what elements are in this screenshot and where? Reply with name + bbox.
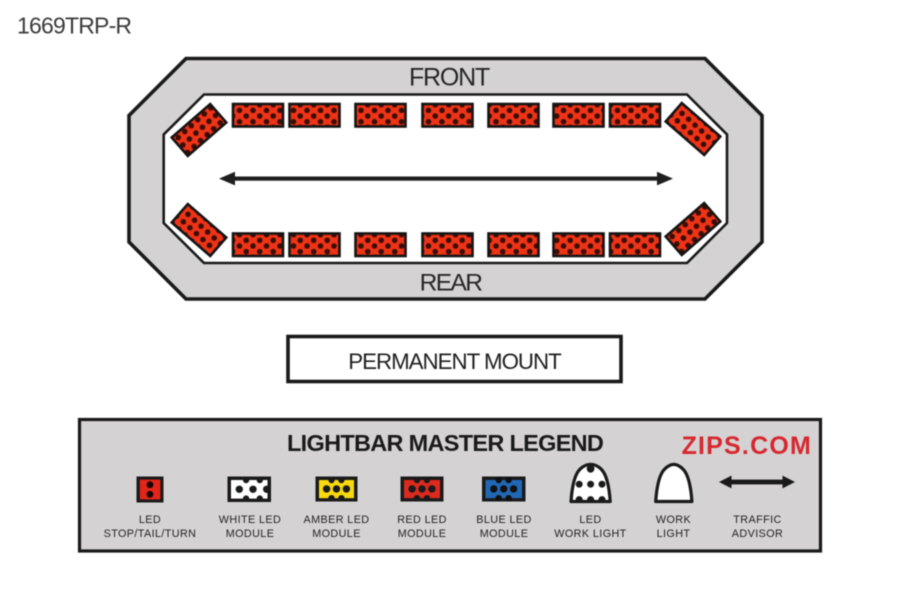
svg-text:LED: LED: [579, 514, 601, 526]
svg-text:LIGHTBAR MASTER LEGEND: LIGHTBAR MASTER LEGEND: [287, 430, 603, 456]
svg-text:RED LED: RED LED: [397, 514, 447, 526]
svg-text:WORK: WORK: [656, 514, 692, 526]
svg-text:MODULE: MODULE: [480, 528, 529, 540]
svg-text:WHITE LED: WHITE LED: [219, 514, 281, 526]
svg-text:ZIPS.COM: ZIPS.COM: [682, 432, 812, 460]
svg-text:MODULE: MODULE: [312, 528, 361, 540]
svg-text:REAR: REAR: [420, 270, 483, 297]
svg-text:AMBER LED: AMBER LED: [304, 514, 370, 526]
svg-text:FRONT: FRONT: [409, 64, 490, 92]
svg-text:MODULE: MODULE: [398, 528, 447, 540]
svg-text:BLUE LED: BLUE LED: [476, 514, 531, 526]
svg-text:TRAFFIC: TRAFFIC: [733, 514, 781, 526]
svg-text:WORK LIGHT: WORK LIGHT: [554, 528, 626, 540]
svg-text:LED: LED: [139, 514, 161, 526]
svg-text:STOP/TAIL/TURN: STOP/TAIL/TURN: [104, 528, 197, 540]
svg-text:ADVISOR: ADVISOR: [732, 528, 783, 540]
svg-text:MODULE: MODULE: [226, 528, 275, 540]
svg-text:1669TRP-R: 1669TRP-R: [17, 13, 131, 39]
svg-text:LIGHT: LIGHT: [657, 528, 691, 540]
svg-text:PERMANENT MOUNT: PERMANENT MOUNT: [348, 349, 562, 374]
